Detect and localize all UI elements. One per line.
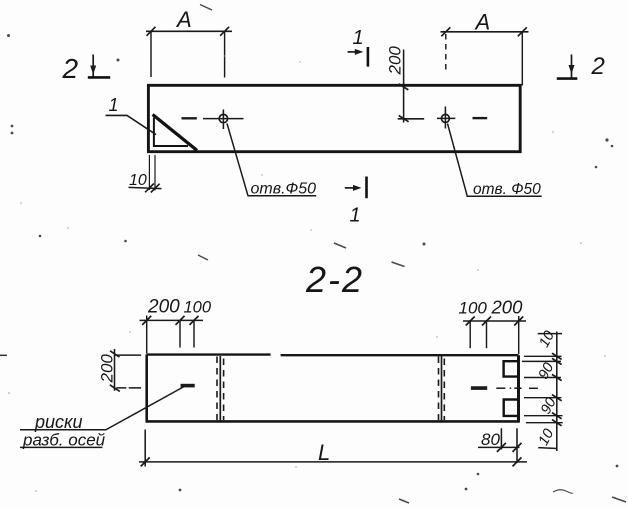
svg-text:2: 2 — [591, 53, 605, 80]
svg-text:1: 1 — [353, 27, 364, 49]
svg-text:риски: риски — [34, 412, 83, 432]
svg-text:A: A — [175, 7, 192, 32]
svg-text:2-2: 2-2 — [305, 259, 364, 300]
svg-text:100: 100 — [459, 299, 488, 318]
svg-text:80: 80 — [481, 430, 500, 449]
svg-text:отв.Ф50: отв.Ф50 — [251, 181, 317, 198]
svg-text:A: A — [474, 10, 491, 35]
svg-text:L: L — [318, 440, 330, 465]
svg-text:200: 200 — [491, 297, 524, 318]
svg-text:1: 1 — [109, 95, 119, 115]
svg-text:100: 100 — [184, 299, 212, 317]
svg-text:200: 200 — [98, 354, 117, 384]
svg-text:отв. Ф50: отв. Ф50 — [473, 181, 541, 198]
svg-text:200: 200 — [386, 46, 405, 76]
svg-text:10: 10 — [129, 172, 147, 189]
svg-text:1: 1 — [350, 205, 361, 227]
svg-text:разб. осей: разб. осей — [22, 431, 106, 450]
svg-text:2: 2 — [62, 53, 79, 84]
svg-text:200: 200 — [147, 297, 180, 318]
